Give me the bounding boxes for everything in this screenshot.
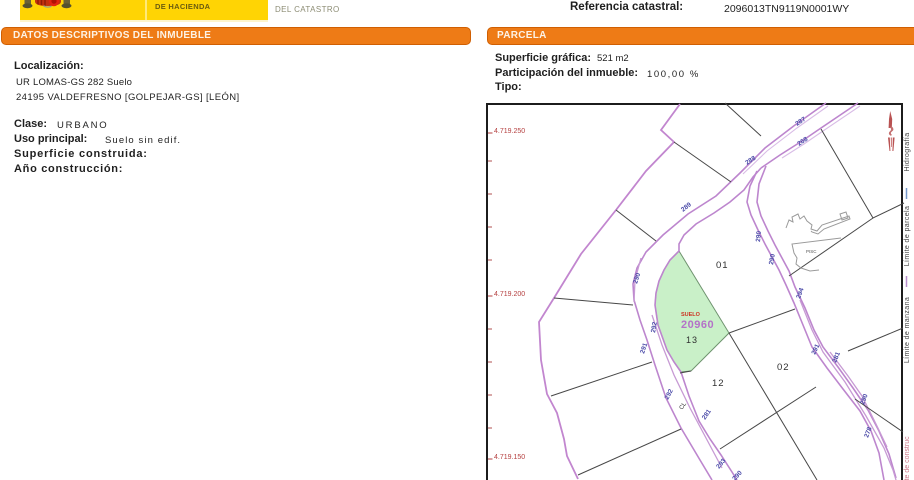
svg-text:Límite de construc: Límite de construc — [904, 436, 911, 480]
svg-text:281: 281 — [701, 408, 713, 421]
svg-text:Hidrografía: Hidrografía — [904, 132, 911, 171]
svg-text:281: 281 — [831, 351, 842, 364]
svg-text:01: 01 — [716, 260, 729, 271]
svg-text:Límite de parcela: Límite de parcela — [904, 206, 911, 267]
svg-text:290: 290 — [755, 230, 763, 242]
svg-text:20960: 20960 — [681, 319, 714, 331]
svg-text:13: 13 — [686, 335, 698, 345]
svg-text:292: 292 — [664, 388, 675, 401]
svg-text:290: 290 — [731, 469, 744, 480]
svg-text:4.719.250: 4.719.250 — [494, 128, 525, 135]
svg-text:4.719.150: 4.719.150 — [494, 454, 525, 461]
svg-text:294: 294 — [795, 287, 805, 300]
svg-text:SUELO: SUELO — [681, 312, 701, 318]
svg-text:290: 290 — [632, 272, 642, 285]
svg-text:02: 02 — [777, 362, 790, 373]
svg-text:PISC: PISC — [806, 249, 817, 254]
svg-text:Límite de manzana: Límite de manzana — [904, 297, 911, 363]
svg-text:12: 12 — [712, 378, 725, 389]
svg-text:4.719.200: 4.719.200 — [494, 291, 525, 298]
